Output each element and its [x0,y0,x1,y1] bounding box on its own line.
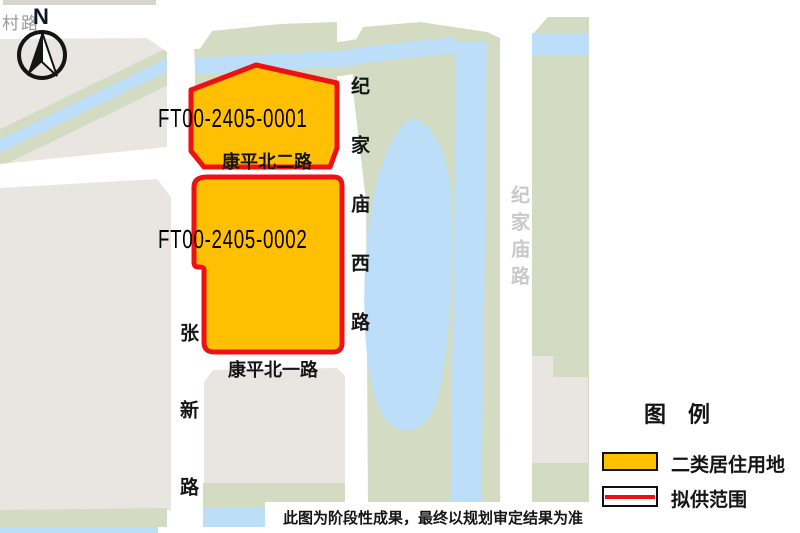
legend-label-supply-boundary: 拟供范围 [671,485,747,512]
canal-vertical [466,42,471,506]
planning-map: 村路 N FT00-2405-0001 FT00-2405-0002 康平北二路… [0,0,800,533]
road-label-zhangxin: 张新路 [174,323,201,533]
green-bottom-left [0,508,167,529]
parcel-2-label: FT00-2405-0002 [158,224,308,255]
legend-swatch-residential [602,452,658,471]
legend-label-residential: 二类居住用地 [671,450,785,477]
disclaimer-text: 此图为阶段性成果，最终以规划审定结果为准 [283,507,583,528]
north-label: N [33,4,49,30]
road-label-jijiamiao: 纪家庙路 [505,185,532,293]
road-label-kangping-north-2: 康平北二路 [222,148,312,174]
parcel-ft00-2405-0002[interactable] [194,177,342,352]
legend-title: 图 例 [644,397,710,429]
road-label-jijiamiao-west: 纪家庙西路 [345,76,372,371]
block-left [0,179,171,510]
block-south-of-parcels [204,368,345,483]
road-label-kangping-north-1: 康平北一路 [228,356,318,382]
legend-redline [605,495,655,499]
river-east [532,33,589,56]
disclaimer-box: 此图为阶段性成果，最终以规划审定结果为准 [265,502,601,533]
river-bottom-left [0,527,158,533]
top-gray-strip [3,0,156,5]
parcel-1-label: FT00-2405-0001 [158,103,308,134]
legend-swatch-supply-boundary [602,486,658,507]
